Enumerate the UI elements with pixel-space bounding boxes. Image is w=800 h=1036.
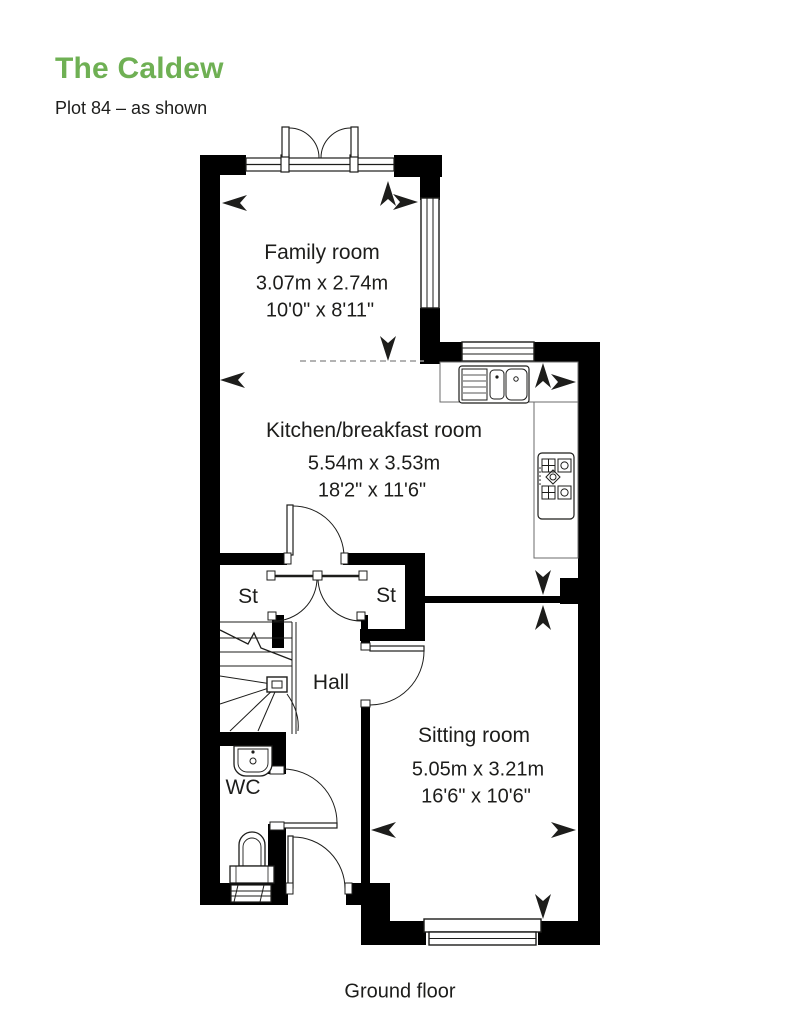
- door-sitting-room: [361, 643, 424, 707]
- front-door: [286, 836, 352, 894]
- arrow-family-up-icon: [380, 181, 396, 206]
- arrow-kitchen-left-icon: [220, 372, 245, 388]
- arrow-sitting-up-icon: [535, 605, 551, 630]
- doors-store-cupboards: [267, 571, 367, 621]
- kitchen-sink: [459, 366, 529, 403]
- floorplan-page: The Caldew Plot 84 – as shown: [0, 0, 800, 1036]
- arrow-sitting-down-icon: [535, 894, 551, 919]
- sitting-room-label: Sitting room: [418, 724, 530, 748]
- store-left-label: St: [238, 585, 258, 609]
- french-doors: [282, 127, 358, 158]
- window-family-room: [421, 198, 439, 308]
- door-kitchen-hall: [284, 505, 348, 564]
- door-wc: [270, 766, 337, 830]
- window-kitchen: [462, 342, 534, 361]
- floor-title: Ground floor: [344, 981, 455, 1004]
- kitchen-imperial: 18'2" x 11'6": [318, 480, 426, 503]
- window-wc: [231, 885, 271, 902]
- stairs: [220, 622, 298, 734]
- arrow-family-down-icon: [380, 336, 396, 361]
- sitting-room-metric: 5.05m x 3.21m: [412, 759, 544, 782]
- kitchen-metric: 5.54m x 3.53m: [308, 453, 440, 476]
- sitting-room-imperial: 16'6" x 10'6": [421, 786, 531, 809]
- floorplan-drawing: [0, 0, 800, 1036]
- kitchen-label: Kitchen/breakfast room: [266, 419, 482, 443]
- french-door-sill: [246, 155, 394, 172]
- arrow-family-right-icon: [393, 194, 418, 210]
- arrow-kitchen-down-icon: [535, 570, 551, 595]
- store-right-label: St: [376, 584, 396, 608]
- toilet-icon: [230, 832, 274, 883]
- wc-label: WC: [226, 776, 261, 800]
- arrow-sitting-right-icon: [551, 822, 576, 838]
- family-room-label: Family room: [264, 241, 380, 265]
- family-room-metric: 3.07m x 2.74m: [256, 273, 388, 296]
- arrow-sitting-left-icon: [371, 822, 396, 838]
- arrow-family-left-icon: [222, 195, 247, 211]
- window-sitting-room: [424, 919, 541, 945]
- family-room-imperial: 10'0" x 8'11": [266, 300, 374, 323]
- basin-icon: [234, 746, 272, 776]
- hall-label: Hall: [313, 671, 349, 695]
